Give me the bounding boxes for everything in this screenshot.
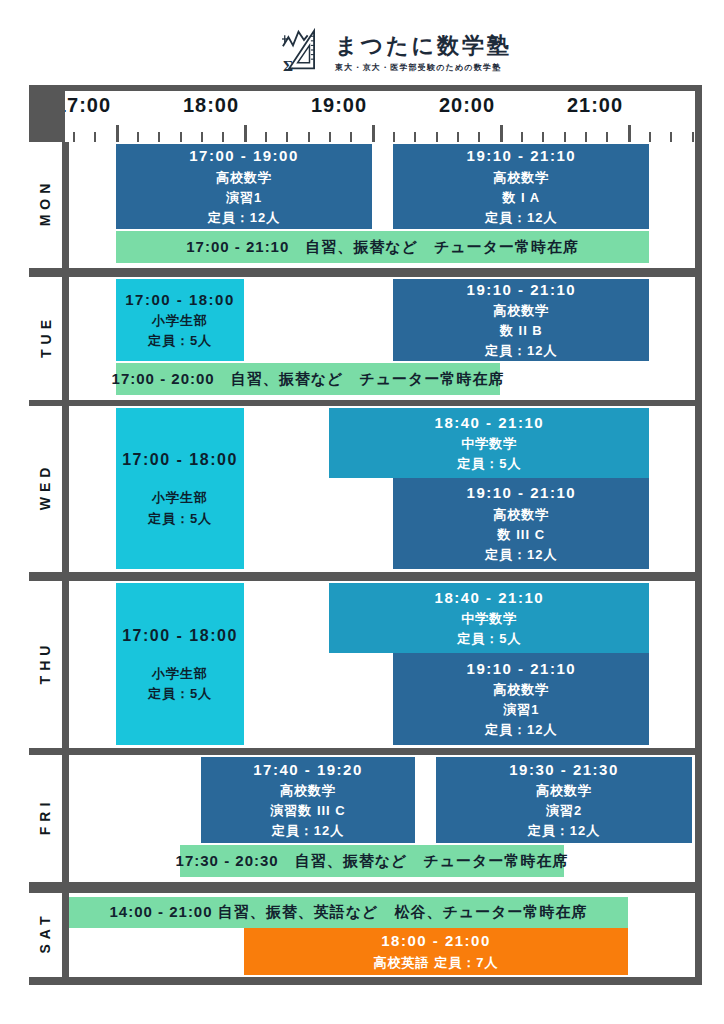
time-label: 18:00 bbox=[169, 94, 253, 117]
day-row-sat: 18:00 - 21:00高校英語 定員：7人14:00 - 21:00 自習、… bbox=[69, 893, 695, 977]
time-axis: 17:0018:0019:0020:0021:00 bbox=[65, 91, 695, 142]
class-line: 演習数 III C bbox=[270, 801, 345, 821]
hour-tick bbox=[500, 125, 503, 142]
day-label-cell: FRI bbox=[29, 755, 62, 882]
class-block: 19:10 - 21:10高校数学数 II B定員：12人 bbox=[393, 279, 649, 361]
class-time: 17:00 - 18:00 bbox=[125, 289, 235, 312]
hour-tick bbox=[116, 125, 119, 142]
day-row-wed: 17:00 - 18:00小学生部定員：5人18:40 - 21:10中学数学定… bbox=[69, 406, 695, 572]
minute-tick bbox=[265, 132, 267, 142]
day-row-tue: 17:00 - 18:00小学生部定員：5人19:10 - 21:10高校数学数… bbox=[69, 277, 695, 400]
class-time: 18:40 - 21:10 bbox=[435, 587, 545, 610]
class-block: 17:00 - 18:00小学生部定員：5人 bbox=[116, 408, 244, 569]
minute-tick bbox=[393, 132, 395, 142]
day-label-wed: WED bbox=[38, 463, 54, 516]
hour-tick bbox=[628, 125, 631, 142]
class-line: 小学生部 bbox=[152, 664, 208, 684]
class-line: 演習1 bbox=[503, 700, 539, 720]
minute-tick bbox=[286, 132, 288, 142]
class-line: 中学数学 bbox=[461, 434, 517, 454]
class-line: 定員：12人 bbox=[485, 208, 557, 228]
minute-tick bbox=[692, 132, 694, 142]
class-time: 19:10 - 21:10 bbox=[467, 145, 577, 168]
day-row-mon: 17:00 - 19:00高校数学演習1定員：12人19:10 - 21:10高… bbox=[69, 142, 695, 268]
class-time: 17:00 - 18:00 bbox=[122, 624, 238, 648]
class-block: 19:30 - 21:30高校数学演習2定員：12人 bbox=[436, 757, 692, 843]
minute-tick bbox=[542, 132, 544, 142]
school-subtitle: 東大・京大・医学部受験のための数学塾 bbox=[335, 62, 512, 73]
class-block: 19:10 - 21:10高校数学数 I A定員：12人 bbox=[393, 144, 649, 229]
class-line: 高校数学 bbox=[493, 680, 549, 700]
tutor-note-bar: 14:00 - 21:00 自習、振替、英語など 松谷、チューター常時在席 bbox=[69, 897, 628, 928]
class-time: 17:40 - 19:20 bbox=[253, 759, 363, 782]
minute-tick bbox=[414, 132, 416, 142]
class-line: 定員：5人 bbox=[148, 331, 212, 351]
minute-tick bbox=[94, 132, 96, 142]
minute-tick bbox=[521, 132, 523, 142]
minute-tick bbox=[308, 132, 310, 142]
day-label-mon: MON bbox=[38, 179, 54, 232]
school-logo: Σ まつたに数学塾 東大・京大・医学部受験のための数学塾 bbox=[282, 26, 512, 74]
class-time: 17:00 - 19:00 bbox=[189, 145, 299, 168]
class-block: 18:00 - 21:00高校英語 定員：7人 bbox=[244, 928, 628, 975]
day-label-sat: SAT bbox=[38, 912, 54, 959]
class-line: 定員：12人 bbox=[528, 821, 600, 841]
class-line: 定員：12人 bbox=[485, 720, 557, 740]
class-line: 高校数学 bbox=[280, 781, 336, 801]
class-line: 定員：12人 bbox=[485, 341, 557, 361]
day-row-fri: 17:40 - 19:20高校数学演習数 III C定員：12人19:30 - … bbox=[69, 755, 695, 882]
class-line: 定員：12人 bbox=[485, 545, 557, 565]
class-line: 定員：5人 bbox=[457, 454, 521, 474]
class-time: 17:00 - 18:00 bbox=[122, 448, 238, 472]
class-line: 定員：5人 bbox=[148, 684, 212, 704]
day-label-thu: THU bbox=[38, 640, 54, 689]
day-label-fri: FRI bbox=[38, 797, 54, 840]
minute-tick bbox=[222, 132, 224, 142]
logo-icon: Σ bbox=[282, 26, 326, 74]
day-label-cell: WED bbox=[29, 406, 62, 572]
class-block: 17:00 - 18:00小学生部定員：5人 bbox=[116, 583, 244, 745]
class-line: 高校英語 定員：7人 bbox=[374, 953, 499, 973]
class-block: 19:10 - 21:10高校数学数 III C定員：12人 bbox=[393, 478, 649, 569]
class-line: 数 I A bbox=[502, 188, 540, 208]
class-line: 定員：12人 bbox=[208, 208, 280, 228]
minute-tick bbox=[180, 132, 182, 142]
class-line: 演習1 bbox=[226, 188, 262, 208]
class-time: 18:40 - 21:10 bbox=[435, 412, 545, 435]
class-line: 中学数学 bbox=[461, 609, 517, 629]
day-label-tue: TUE bbox=[38, 315, 54, 363]
day-label-cell: SAT bbox=[29, 893, 62, 977]
time-label: 21:00 bbox=[553, 94, 637, 117]
minute-tick bbox=[478, 132, 480, 142]
class-block: 17:00 - 19:00高校数学演習1定員：12人 bbox=[116, 144, 372, 229]
class-line: 高校数学 bbox=[493, 168, 549, 188]
minute-tick bbox=[350, 132, 352, 142]
minute-tick bbox=[457, 132, 459, 142]
hour-tick bbox=[244, 125, 247, 142]
day-label-cell: TUE bbox=[29, 277, 62, 400]
day-label-cell: THU bbox=[29, 581, 62, 748]
time-label: 17:00 bbox=[65, 94, 125, 117]
minute-tick bbox=[585, 132, 587, 142]
class-line: 高校数学 bbox=[536, 781, 592, 801]
class-time: 18:00 - 21:00 bbox=[381, 930, 491, 953]
minute-tick bbox=[649, 132, 651, 142]
class-time: 19:10 - 21:10 bbox=[467, 658, 577, 681]
class-line: 高校数学 bbox=[493, 505, 549, 525]
class-line: 数 II B bbox=[500, 321, 543, 341]
tutor-note-bar: 17:30 - 20:30 自習、振替など チューター常時在席 bbox=[180, 845, 564, 877]
class-time: 19:30 - 21:30 bbox=[509, 759, 619, 782]
time-label: 19:00 bbox=[297, 94, 381, 117]
minute-tick bbox=[670, 132, 672, 142]
minute-tick bbox=[564, 132, 566, 142]
class-line: 定員：12人 bbox=[272, 821, 344, 841]
minute-tick bbox=[606, 132, 608, 142]
svg-text:Σ: Σ bbox=[283, 57, 293, 74]
class-time: 19:10 - 21:10 bbox=[467, 279, 577, 302]
day-row-thu: 17:00 - 18:00小学生部定員：5人18:40 - 21:10中学数学定… bbox=[69, 581, 695, 748]
class-block: 18:40 - 21:10中学数学定員：5人 bbox=[329, 583, 649, 653]
class-line: 定員：5人 bbox=[148, 509, 212, 529]
timetable-board: 17:0018:0019:0020:0021:00 MON17:00 - 19:… bbox=[29, 85, 702, 985]
class-line: 高校数学 bbox=[493, 301, 549, 321]
minute-tick bbox=[201, 132, 203, 142]
class-line: 定員：5人 bbox=[457, 629, 521, 649]
class-block: 19:10 - 21:10高校数学演習1定員：12人 bbox=[393, 653, 649, 745]
day-label-cell: MON bbox=[29, 142, 62, 268]
class-line: 演習2 bbox=[546, 801, 582, 821]
class-time: 19:10 - 21:10 bbox=[467, 482, 577, 505]
class-block: 17:00 - 18:00小学生部定員：5人 bbox=[116, 279, 244, 361]
class-line: 高校数学 bbox=[216, 168, 272, 188]
class-line: 小学生部 bbox=[152, 311, 208, 331]
time-label: 20:00 bbox=[425, 94, 509, 117]
minute-tick bbox=[73, 132, 75, 142]
minute-tick bbox=[137, 132, 139, 142]
tutor-note-bar: 17:00 - 20:00 自習、振替など チューター常時在席 bbox=[116, 363, 500, 395]
minute-tick bbox=[329, 132, 331, 142]
minute-tick bbox=[158, 132, 160, 142]
school-title: まつたに数学塾 bbox=[335, 34, 512, 58]
class-block: 18:40 - 21:10中学数学定員：5人 bbox=[329, 408, 649, 478]
tutor-note-bar: 17:00 - 21:10 自習、振替など チューター常時在席 bbox=[116, 231, 649, 263]
class-line: 小学生部 bbox=[152, 488, 208, 508]
class-line: 数 III C bbox=[498, 525, 545, 545]
hour-tick bbox=[372, 125, 375, 142]
class-block: 17:40 - 19:20高校数学演習数 III C定員：12人 bbox=[201, 757, 414, 843]
minute-tick bbox=[436, 132, 438, 142]
